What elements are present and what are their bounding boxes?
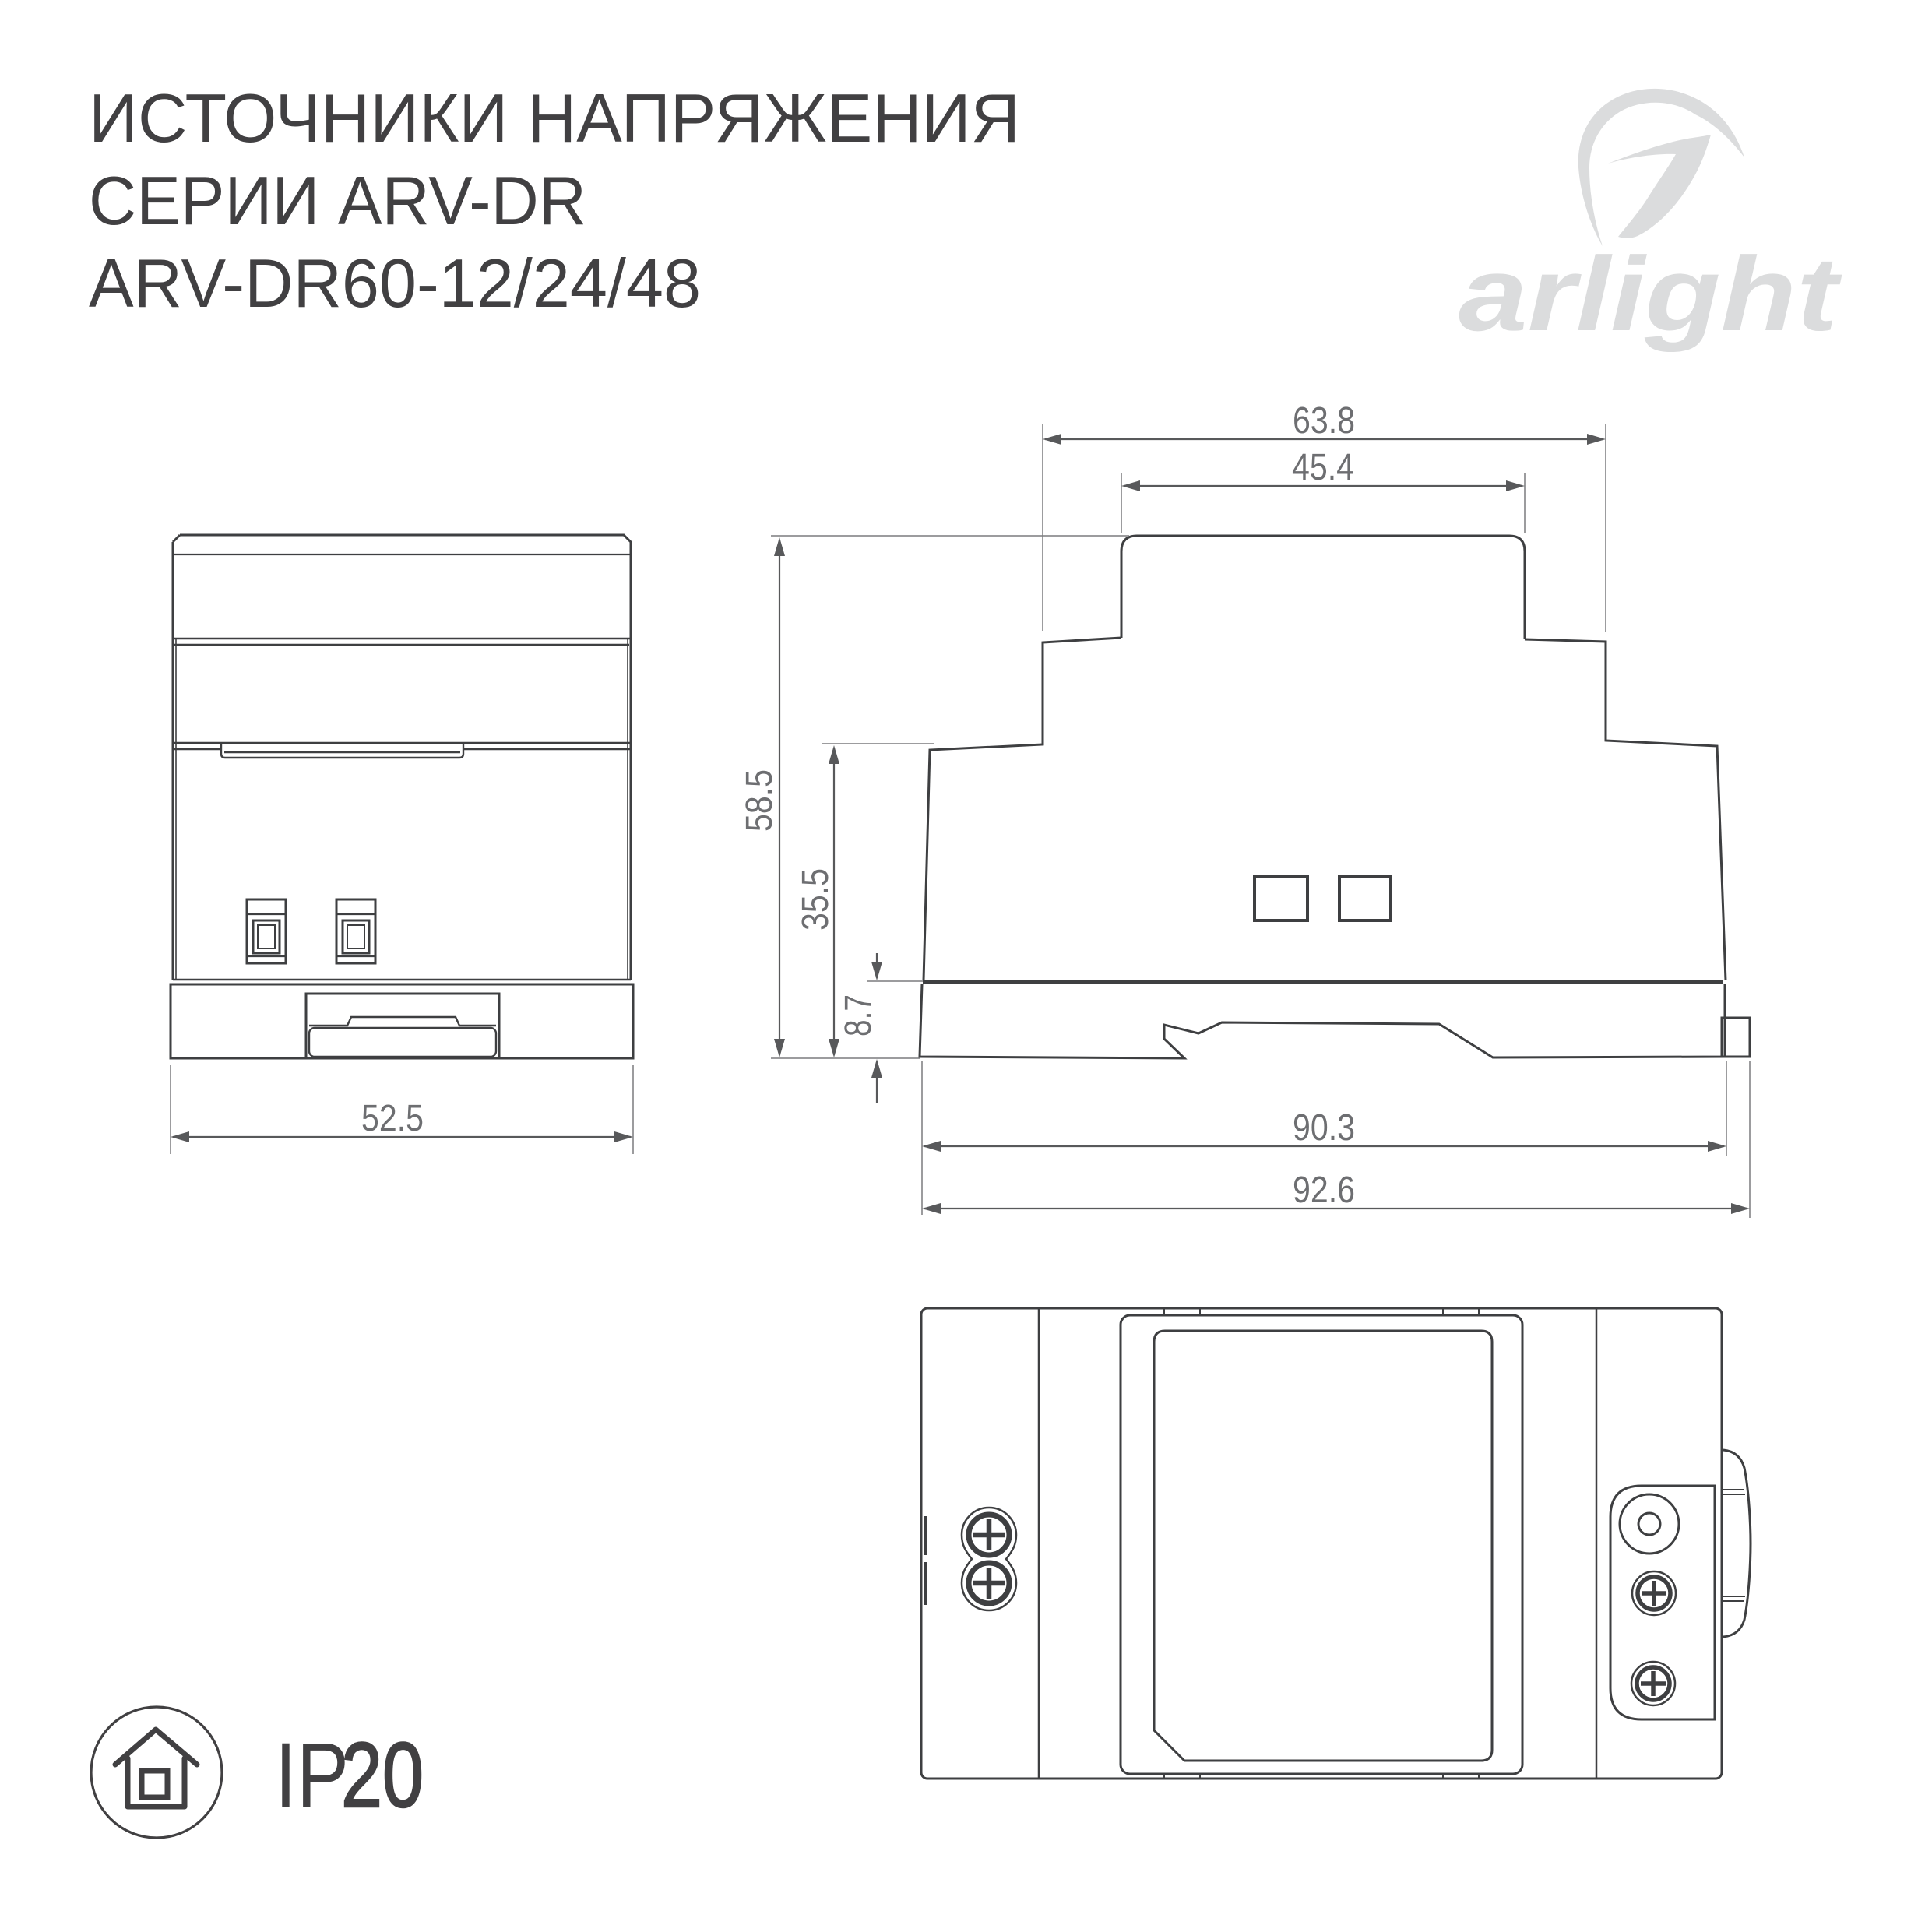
- svg-text:63.8: 63.8: [1293, 400, 1355, 442]
- svg-text:92.6: 92.6: [1293, 1170, 1355, 1211]
- svg-text:8.7: 8.7: [838, 994, 879, 1036]
- svg-text:IP: IP: [275, 1724, 349, 1827]
- svg-text:ARV-DR60-12/24/48: ARV-DR60-12/24/48: [89, 245, 701, 322]
- svg-text:arlight: arlight: [1459, 235, 1842, 353]
- svg-text:52.5: 52.5: [361, 1098, 424, 1139]
- svg-text:СЕРИИ ARV-DR: СЕРИИ ARV-DR: [89, 162, 586, 239]
- svg-text:20: 20: [341, 1724, 424, 1827]
- svg-text:90.3: 90.3: [1293, 1107, 1355, 1149]
- svg-text:ИСТОЧНИКИ НАПРЯЖЕНИЯ: ИСТОЧНИКИ НАПРЯЖЕНИЯ: [89, 79, 1020, 157]
- svg-text:58.5: 58.5: [739, 769, 780, 832]
- svg-text:45.4: 45.4: [1292, 447, 1354, 488]
- svg-text:35.5: 35.5: [795, 868, 836, 931]
